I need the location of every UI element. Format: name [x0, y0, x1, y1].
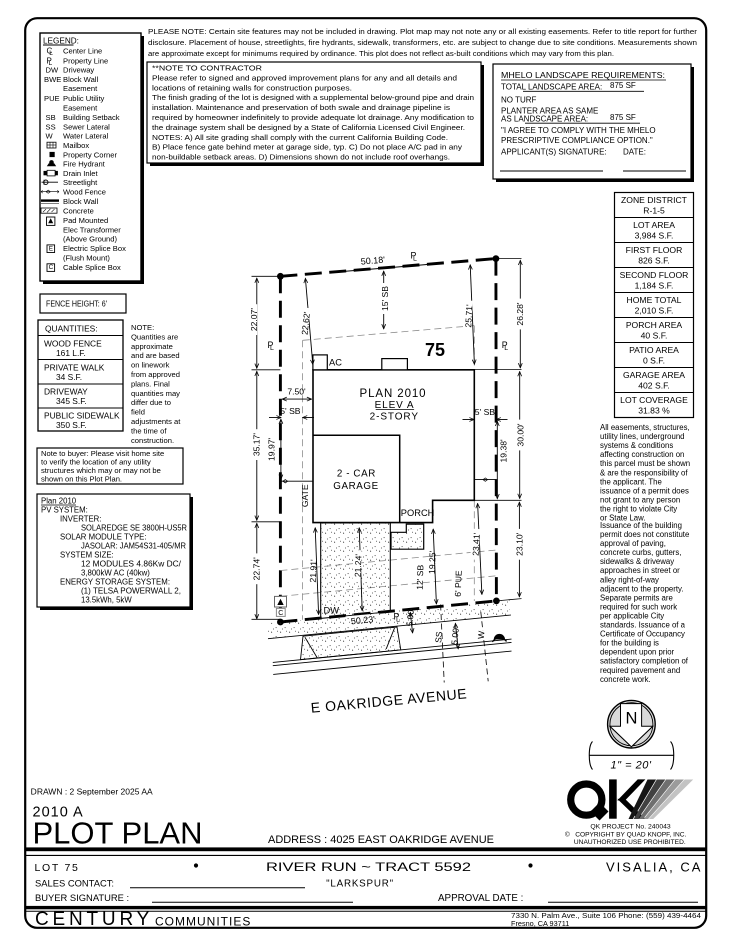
svg-text:utility lines, underground: utility lines, underground [600, 432, 685, 441]
svg-text:30.00': 30.00' [516, 423, 526, 447]
svg-text:BUYER SIGNATURE :: BUYER SIGNATURE : [35, 892, 129, 903]
svg-text:LOT 75: LOT 75 [35, 862, 80, 874]
svg-text:PRIVATE WALK: PRIVATE WALK [44, 363, 105, 373]
svg-text:Separate permits are: Separate permits are [600, 593, 673, 602]
svg-text:MHELO LANDSCAPE REQUIREMENTS:: MHELO LANDSCAPE REQUIREMENTS: [501, 70, 665, 80]
svg-text:© COPYRIGHT BY QUAD KNOPF, I: © COPYRIGHT BY QUAD KNOPF, INC. [565, 831, 687, 839]
svg-text:22.74': 22.74' [251, 557, 261, 581]
svg-text:Easement: Easement [63, 104, 98, 113]
svg-text:50.18': 50.18' [360, 255, 385, 267]
svg-text:2,010 S.F.: 2,010 S.F. [635, 306, 674, 316]
svg-text:construction.: construction. [131, 436, 174, 445]
svg-text:E: E [49, 245, 53, 252]
svg-text:Plan 2010: Plan 2010 [41, 497, 77, 506]
svg-text:plans. Final: plans. Final [131, 379, 170, 388]
svg-text:Wood Fence: Wood Fence [63, 188, 106, 197]
svg-text:GARAGE: GARAGE [333, 481, 379, 492]
svg-text:Building Setback: Building Setback [63, 113, 120, 122]
svg-text:systems & conditions: systems & conditions [600, 441, 673, 450]
svg-text:Pad Mounted: Pad Mounted [63, 216, 108, 225]
svg-text:Please refer to signed and app: Please refer to signed and approved impr… [152, 73, 457, 82]
svg-text:JASOLAR: JAM54S31-405/MR: JASOLAR: JAM54S31-405/MR [81, 542, 186, 551]
svg-text:field: field [131, 408, 145, 417]
svg-text:19.38': 19.38' [499, 439, 509, 463]
svg-text:Property Corner: Property Corner [63, 150, 117, 159]
svg-text:GATE: GATE [300, 484, 310, 507]
svg-text:approval of paving,: approval of paving, [600, 539, 666, 548]
svg-text:Property Line: Property Line [63, 56, 108, 65]
svg-text:SS: SS [433, 631, 444, 644]
svg-text:C: C [278, 610, 283, 617]
svg-text:Streetlight: Streetlight [63, 178, 98, 187]
svg-text:on linework: on linework [131, 361, 170, 370]
svg-text:UNAUTHORIZED USE PROHIBITED.: UNAUTHORIZED USE PROHIBITED. [574, 839, 686, 846]
svg-text:2-STORY: 2-STORY [370, 412, 419, 423]
svg-text:installation. Maintenance and: installation. Maintenance and preservati… [152, 103, 450, 112]
svg-text:875 SF: 875 SF [610, 81, 636, 90]
svg-text:5' SB: 5' SB [475, 407, 496, 417]
svg-text:AC: AC [329, 358, 342, 368]
svg-text:Certificate of Occupancy: Certificate of Occupancy [600, 630, 685, 639]
svg-text:(Above Ground): (Above Ground) [63, 234, 117, 243]
svg-text:locations of retaining walls f: locations of retaining walls for constru… [152, 83, 352, 92]
svg-text:All easements, structures,: All easements, structures, [600, 423, 690, 432]
svg-text:19.97': 19.97' [266, 437, 276, 461]
svg-text:25.71': 25.71' [463, 304, 474, 328]
svg-text:LOT AREA: LOT AREA [633, 220, 675, 230]
svg-text:15' SB: 15' SB [380, 286, 390, 311]
svg-text:PLAN 2010: PLAN 2010 [360, 388, 427, 400]
svg-text:21.91': 21.91' [308, 559, 319, 583]
svg-text:PATIO AREA: PATIO AREA [629, 345, 679, 355]
svg-text:& are the responsibility of: & are the responsibility of [600, 468, 688, 477]
svg-text:APPROVAL DATE :: APPROVAL DATE : [438, 893, 523, 904]
svg-text:permit does not constitute: permit does not constitute [600, 530, 689, 539]
svg-text:875 SF: 875 SF [610, 113, 636, 122]
svg-text:Sewer Lateral: Sewer Lateral [63, 122, 110, 131]
svg-text:Mailbox: Mailbox [63, 141, 89, 150]
svg-text:dependent upon prior: dependent upon prior [600, 648, 675, 657]
svg-text:PORCH: PORCH [401, 508, 435, 518]
svg-text:alley right-of-way: alley right-of-way [600, 575, 659, 584]
svg-text:PV SYSTEM:: PV SYSTEM: [41, 506, 88, 515]
svg-text:C: C [49, 264, 54, 271]
svg-text:INVERTER:: INVERTER: [60, 515, 101, 524]
svg-text:"LARKSPUR": "LARKSPUR" [326, 879, 394, 890]
svg-text:40 S.F.: 40 S.F. [641, 331, 668, 341]
svg-text:PRESCRIPTIVE COMPLIANCE OPTION: PRESCRIPTIVE COMPLIANCE OPTION." [501, 136, 653, 145]
svg-text:the time of: the time of [131, 426, 167, 435]
svg-text:N: N [625, 710, 637, 728]
svg-text:NO TURF: NO TURF [501, 96, 537, 105]
svg-text:DRAWN : 2 September 2025 AA: DRAWN : 2 September 2025 AA [31, 788, 154, 797]
svg-text:Electric Splice Box: Electric Splice Box [63, 244, 126, 253]
svg-text:QK PROJECT No. 240043: QK PROJECT No. 240043 [590, 823, 671, 830]
svg-text:and are based: and are based [131, 351, 180, 360]
svg-text:ENERGY STORAGE SYSTEM:: ENERGY STORAGE SYSTEM: [60, 578, 170, 587]
svg-text:826 S.F.: 826 S.F. [638, 256, 670, 266]
svg-text:23.41': 23.41' [471, 532, 482, 556]
svg-text:concrete curbs, gutters,: concrete curbs, gutters, [600, 548, 681, 557]
svg-text:PUBLIC SIDEWALK: PUBLIC SIDEWALK [44, 411, 120, 421]
svg-text:adjustments at: adjustments at [131, 417, 181, 426]
svg-text:NOTE:: NOTE: [131, 323, 154, 332]
svg-text:NOTES: A) All site grading sh: NOTES: A) All site grading shall comply … [152, 133, 448, 142]
svg-text:DW: DW [324, 606, 340, 616]
svg-text:**NOTE TO CONTRACTOR: **NOTE TO CONTRACTOR [152, 64, 263, 73]
svg-text:RIVER RUN ~ TRACT 5592: RIVER RUN ~ TRACT 5592 [266, 862, 471, 874]
svg-text:R-1-5: R-1-5 [643, 206, 665, 216]
svg-text:CENTURY: CENTURY [35, 909, 153, 930]
svg-text:adjacent to the property.: adjacent to the property. [600, 584, 684, 593]
svg-text:the applicant. The: the applicant. The [600, 477, 662, 486]
svg-text:PORCH AREA: PORCH AREA [626, 320, 683, 330]
svg-text:7.50': 7.50' [287, 386, 306, 396]
svg-text:34 S.F.: 34 S.F. [56, 372, 82, 382]
svg-text:26.28': 26.28' [515, 302, 525, 326]
svg-text:are approximate except for min: are approximate except for minimums requ… [148, 49, 614, 58]
svg-text:non-buildable setback areas.: non-buildable setback areas. D) Dimensio… [152, 153, 450, 162]
svg-text:Cable Splice Box: Cable Splice Box [63, 263, 121, 272]
svg-text:L: L [413, 256, 417, 263]
svg-text:L: L [270, 345, 274, 352]
svg-text:PUE: PUE [44, 94, 60, 103]
svg-text:approximate: approximate [131, 342, 173, 351]
svg-text:PLEASE NOTE: Certain site fea: PLEASE NOTE: Certain site features may n… [148, 27, 698, 36]
svg-text:AS LANDSCAPE AREA:: AS LANDSCAPE AREA: [501, 115, 588, 124]
svg-text:differ due to: differ due to [131, 398, 171, 407]
svg-text:ZONE DISTRICT: ZONE DISTRICT [621, 195, 688, 205]
svg-text:DRIVEWAY: DRIVEWAY [44, 387, 88, 397]
svg-text:Water Lateral: Water Lateral [63, 132, 109, 141]
svg-text:LEGEND:: LEGEND: [43, 37, 79, 46]
svg-text:Drain Inlet: Drain Inlet [63, 169, 98, 178]
svg-text:ADDRESS : 4025 EAST OAKRIDGE: ADDRESS : 4025 EAST OAKRIDGE AVENUE [268, 834, 494, 846]
svg-text:3,800kW AC (40kw): 3,800kW AC (40kw) [81, 569, 150, 578]
svg-text:(1) TELSA POWERWALL 2,: (1) TELSA POWERWALL 2, [81, 587, 181, 596]
svg-text:1,184 S.F.: 1,184 S.F. [635, 281, 674, 291]
svg-text:this parcel must be shown: this parcel must be shown [600, 459, 690, 468]
svg-text:SB: SB [46, 113, 56, 122]
svg-text:0 S.F.: 0 S.F. [643, 356, 665, 366]
svg-text:12' SB: 12' SB [415, 564, 426, 590]
svg-text:SOLAREDGE SE 3800H-US5R: SOLAREDGE SE 3800H-US5R [81, 524, 187, 533]
svg-text:satisfactory completion of: satisfactory completion of [600, 657, 689, 666]
svg-text:3,984 S.F.: 3,984 S.F. [635, 231, 674, 241]
svg-text:standards. Issuance of a: standards. Issuance of a [600, 621, 686, 630]
svg-text:BWE: BWE [44, 75, 61, 84]
svg-text:"I AGREE TO COMPLY WITH THE MH: "I AGREE TO COMPLY WITH THE MHELO [501, 126, 656, 135]
svg-text:Elec Transformer: Elec Transformer [63, 225, 121, 234]
svg-text:Block Wall: Block Wall [63, 75, 98, 84]
svg-text:Public Utility: Public Utility [63, 94, 105, 103]
svg-text:SYSTEM SIZE:: SYSTEM SIZE: [60, 551, 114, 560]
svg-text:per applicable City: per applicable City [600, 612, 664, 621]
svg-text:quantities may: quantities may [131, 389, 180, 398]
svg-text:approaches in street or: approaches in street or [600, 566, 680, 575]
svg-text:sidewalks & driveway: sidewalks & driveway [600, 557, 674, 566]
svg-text:35.17': 35.17' [252, 433, 262, 457]
svg-text:Quantities are: Quantities are [131, 332, 178, 341]
svg-text:the drainage system shall be d: the drainage system shall be designed by… [152, 123, 465, 132]
svg-text:disclosure. Placement of hous: disclosure. Placement of house, streetli… [148, 38, 697, 47]
svg-text:not grant to any person: not grant to any person [600, 495, 680, 504]
svg-text:21.24': 21.24' [353, 553, 364, 577]
svg-text:required pavement and: required pavement and [600, 666, 680, 675]
svg-text:Block Wall: Block Wall [63, 197, 98, 206]
svg-text:161 L.F.: 161 L.F. [56, 348, 86, 358]
svg-text:affecting construction on: affecting construction on [600, 450, 684, 459]
svg-text:75: 75 [425, 340, 445, 360]
svg-text:concrete work.: concrete work. [600, 675, 651, 684]
svg-text:L: L [504, 345, 508, 352]
svg-text:402 S.F.: 402 S.F. [638, 381, 670, 391]
svg-text:5' SB: 5' SB [280, 406, 301, 416]
svg-text:HOME TOTAL: HOME TOTAL [627, 295, 682, 305]
svg-text:PLOT PLAN: PLOT PLAN [33, 816, 203, 851]
svg-text:(Flush Mount): (Flush Mount) [63, 253, 110, 262]
svg-text:The finish grading of the lot: The finish grading of the lot is designe… [152, 93, 474, 102]
svg-text:SOLAR MODULE TYPE:: SOLAR MODULE TYPE: [60, 533, 147, 542]
svg-text:required for such work: required for such work [600, 602, 677, 611]
svg-text:SECOND FLOOR: SECOND FLOOR [620, 270, 689, 280]
svg-text:COMMUNITIES: COMMUNITIES [155, 914, 251, 928]
svg-text:B) Place fence gate behind met: B) Place fence gate behind meter at gara… [152, 143, 462, 152]
svg-text:Easement: Easement [63, 84, 98, 93]
svg-text:SS: SS [46, 122, 56, 131]
svg-text:23.10': 23.10' [514, 532, 524, 556]
svg-text:GARAGE AREA: GARAGE AREA [623, 370, 685, 380]
svg-text:6' PUE: 6' PUE [453, 570, 464, 597]
svg-text:19.25': 19.25' [427, 550, 438, 574]
svg-text:22.07': 22.07' [249, 308, 259, 332]
svg-text:DW: DW [46, 66, 59, 75]
svg-text:FIRST FLOOR: FIRST FLOOR [626, 245, 683, 255]
svg-text:VISALIA, CA: VISALIA, CA [606, 860, 702, 875]
svg-text:FENCE HEIGHT: 6': FENCE HEIGHT: 6' [46, 299, 107, 309]
svg-text:shown on this Plot Plan.: shown on this Plot Plan. [41, 474, 122, 483]
svg-text:required by homeowner indefini: required by homeowner indefinitely to pr… [152, 113, 474, 122]
svg-text:the right to violate City: the right to violate City [600, 505, 677, 514]
svg-text:DATE:: DATE: [623, 148, 646, 157]
svg-text:350 S.F.: 350 S.F. [56, 420, 87, 430]
svg-text:12 MODULES 4.86Kw DC/: 12 MODULES 4.86Kw DC/ [81, 560, 182, 569]
svg-text:issuance of a permit does: issuance of a permit does [600, 486, 689, 495]
svg-text:TOTAL LANDSCAPE AREA:: TOTAL LANDSCAPE AREA: [501, 83, 602, 92]
svg-text:5.00': 5.00' [449, 626, 461, 646]
svg-text:1" = 20': 1" = 20' [611, 760, 652, 772]
svg-text:Driveway: Driveway [63, 66, 94, 75]
svg-text:345 S.F.: 345 S.F. [56, 396, 87, 406]
svg-text:13.5kWh, 5kW: 13.5kWh, 5kW [81, 596, 132, 605]
svg-text:QUANTITIES:: QUANTITIES: [45, 324, 98, 334]
svg-text:for the building is: for the building is [600, 639, 659, 648]
svg-text:WOOD FENCE: WOOD FENCE [44, 339, 102, 349]
svg-text:Concrete: Concrete [63, 206, 94, 215]
svg-text:W: W [46, 132, 54, 141]
svg-text:SALES CONTACT:: SALES CONTACT: [35, 878, 114, 889]
svg-text:2 - CAR: 2 - CAR [337, 469, 376, 480]
svg-text:Fire Hydrant: Fire Hydrant [63, 159, 106, 168]
svg-text:LOT COVERAGE: LOT COVERAGE [620, 395, 688, 405]
svg-text:APPLICANT(S) SIGNATURE:: APPLICANT(S) SIGNATURE: [501, 148, 607, 157]
svg-text:Issuance of the building: Issuance of the building [600, 521, 682, 530]
svg-text:31.83 %: 31.83 % [638, 406, 670, 416]
svg-text:Center Line: Center Line [63, 46, 102, 55]
svg-text:from approved: from approved [131, 370, 180, 379]
svg-text:Fresno, CA 93711: Fresno, CA 93711 [511, 919, 569, 928]
